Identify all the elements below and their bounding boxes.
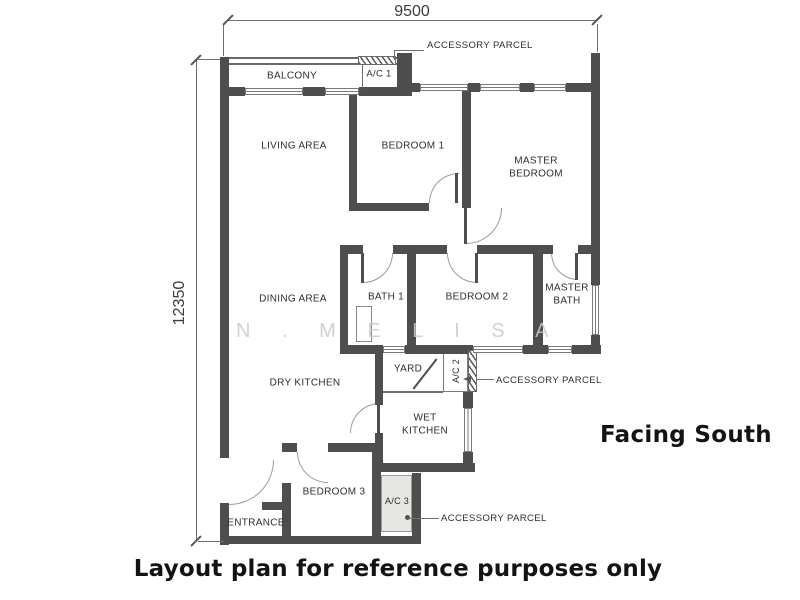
wall-segment bbox=[520, 83, 534, 92]
door-swing-arc bbox=[229, 460, 274, 505]
wall-segment bbox=[228, 536, 421, 544]
floor-plan-canvas: N . M E L I S A 9500 12350 BALCONY A/C 1… bbox=[0, 0, 800, 600]
accessory-parcel-hatch-top bbox=[358, 56, 396, 65]
yard-wetkitchen-line bbox=[383, 391, 443, 393]
wall-segment bbox=[572, 345, 601, 354]
leader-line bbox=[410, 518, 439, 519]
door-leaf bbox=[475, 253, 478, 283]
balcony-ac1-divider-line bbox=[362, 63, 363, 89]
window bbox=[383, 346, 405, 353]
extension-line bbox=[223, 24, 224, 56]
room-label-bedroom1: BEDROOM 1 bbox=[382, 141, 445, 152]
door-leaf bbox=[361, 253, 364, 283]
wall-segment bbox=[463, 392, 473, 408]
room-label-master-bath: MASTER BATH bbox=[538, 283, 596, 308]
leader-line bbox=[394, 50, 424, 51]
wall-segment bbox=[375, 463, 475, 472]
room-label-bedroom2: BEDROOM 2 bbox=[446, 292, 509, 303]
room-label-bedroom3: BEDROOM 3 bbox=[303, 487, 366, 498]
leader-arrow bbox=[463, 376, 471, 382]
room-label-yard: YARD bbox=[394, 364, 422, 375]
wall-segment bbox=[463, 452, 473, 465]
room-label-dining-area: DINING AREA bbox=[259, 294, 327, 305]
door-swing-arc bbox=[447, 253, 477, 283]
door-leaf bbox=[575, 253, 578, 280]
wall-segment bbox=[412, 473, 421, 543]
room-label-ac2: A/C 2 bbox=[451, 359, 461, 383]
wall-segment bbox=[405, 345, 473, 354]
window bbox=[245, 88, 303, 95]
wall-segment bbox=[282, 443, 297, 452]
wall-segment bbox=[359, 87, 412, 96]
watermark-text: N . M E L I S A bbox=[236, 320, 561, 343]
wall-segment bbox=[229, 87, 245, 96]
wall-segment bbox=[349, 203, 429, 211]
wall-segment bbox=[303, 87, 325, 96]
facing-direction-text: Facing South bbox=[600, 422, 772, 448]
window bbox=[480, 84, 520, 91]
callout-accessory-parcel-middle: ACCESSORY PARCEL bbox=[496, 375, 602, 386]
wall-segment bbox=[393, 245, 447, 254]
door-swing-arc bbox=[363, 253, 393, 283]
door-swing-arc bbox=[297, 452, 328, 483]
window bbox=[420, 84, 468, 91]
door-leaf bbox=[455, 173, 458, 203]
extension-line bbox=[597, 24, 598, 52]
extension-line bbox=[198, 59, 220, 60]
dimension-height-label: 12350 bbox=[171, 281, 189, 326]
room-label-wet-kitchen: WET KITCHEN bbox=[397, 413, 453, 438]
wall-segment bbox=[282, 483, 291, 543]
accessory-parcel-hatch-middle bbox=[468, 350, 477, 392]
window bbox=[325, 88, 359, 95]
dimension-width-label: 9500 bbox=[394, 3, 430, 21]
wall-segment bbox=[220, 57, 229, 458]
caption-text: Layout plan for reference purposes only bbox=[134, 556, 662, 582]
callout-accessory-parcel-bottom: ACCESSORY PARCEL bbox=[441, 513, 547, 524]
room-label-entrance: ENTRANCE bbox=[227, 518, 284, 529]
wall-segment bbox=[523, 345, 548, 354]
room-label-master-bedroom: MASTER BEDROOM bbox=[500, 156, 572, 181]
door-swing-arc bbox=[551, 253, 578, 280]
room-label-balcony: BALCONY bbox=[267, 71, 317, 82]
wall-segment bbox=[375, 345, 383, 405]
room-label-ac1: A/C 1 bbox=[366, 69, 391, 80]
wall-segment bbox=[578, 245, 600, 254]
door-swing-arc bbox=[466, 208, 502, 244]
door-swing-arc bbox=[350, 403, 380, 433]
door-leaf bbox=[377, 403, 380, 433]
callout-accessory-parcel-top: ACCESSORY PARCEL bbox=[427, 40, 533, 51]
room-label-dry-kitchen: DRY KITCHEN bbox=[270, 378, 341, 389]
window bbox=[473, 346, 523, 353]
wall-segment bbox=[349, 94, 357, 211]
wall-segment bbox=[262, 502, 286, 510]
room-label-bath1: BATH 1 bbox=[368, 292, 404, 303]
room-label-ac3: A/C 3 bbox=[385, 496, 409, 506]
extension-line bbox=[198, 541, 224, 542]
window bbox=[548, 346, 572, 353]
wall-segment bbox=[462, 91, 471, 208]
door-leaf bbox=[464, 208, 467, 244]
wall-segment bbox=[412, 83, 420, 92]
room-label-living-area: LIVING AREA bbox=[261, 141, 327, 152]
window bbox=[534, 84, 566, 91]
dimension-line-left bbox=[196, 60, 197, 541]
wall-segment bbox=[372, 443, 381, 543]
leader-dot bbox=[405, 515, 410, 520]
window bbox=[464, 408, 472, 452]
